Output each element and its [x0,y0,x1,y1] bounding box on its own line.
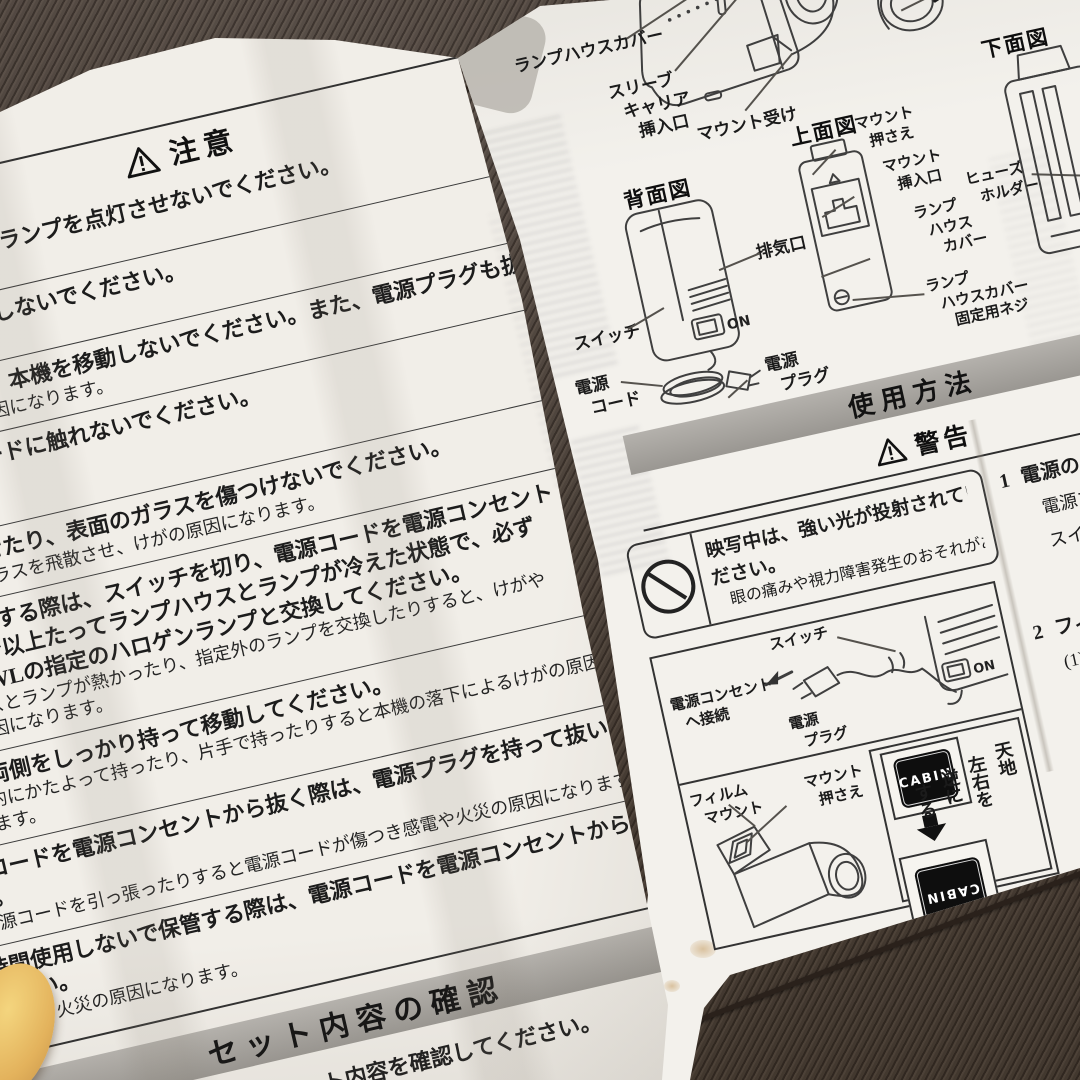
usage-steps: 1 電源の入れか 電源プラグを スイッチを 2 フィル (1)フ [997,417,1080,679]
warning-triangle-icon [873,434,908,467]
step-title-text: フィル [1052,605,1080,641]
warning-triangle-icon [121,143,161,180]
step-number: 2 [1031,620,1046,646]
heading-text: 注意 [166,125,241,169]
photo-of-manual: ランプハウスカバー スリーブ キャリア 挿入口 マウント受け レンズキャップ 背… [0,0,1080,1080]
cabin-mount-flipped: CABIN [899,839,1007,948]
on-label: ON [972,658,997,677]
step-2-title: 2 フィル [1031,568,1080,646]
mount-orientation-panel: CABIN CABIN 天地 左右を 逆に する [868,717,1052,903]
label-mount-slot: マウント 挿入口 [881,146,948,197]
cabin-logo-text: CABIN [924,880,981,907]
on-label: ON [726,313,753,334]
prohibition-icon [636,554,700,618]
label-power-plug: 電源 プラグ [763,342,833,399]
label-mount-holder-top: マウント 押さえ [853,104,920,155]
label-lamp-cover-screw: ランプ ハウスカバー 固定用ネジ [924,257,1035,336]
label-power-cord: 電源 コード [573,366,643,423]
step-title-text: 電源の入れか [1019,440,1080,489]
bottom-view-diagram [990,37,1080,270]
step-number: 1 [997,469,1012,495]
flip-note-line: する [908,781,942,824]
heading-text: 警告 [911,415,975,463]
label-exhaust-vent: 排気口 [754,232,809,265]
label-text: 排気口 [754,233,808,263]
label-text: レンズキャップ [927,0,1047,7]
stain [664,980,680,992]
label-sleeve-carrier-slot: スリーブ キャリア 挿入口 [606,66,697,148]
setup-diagram-box: スイッチ 電源コンセント へ接続 電源 プラグ [649,581,1060,951]
